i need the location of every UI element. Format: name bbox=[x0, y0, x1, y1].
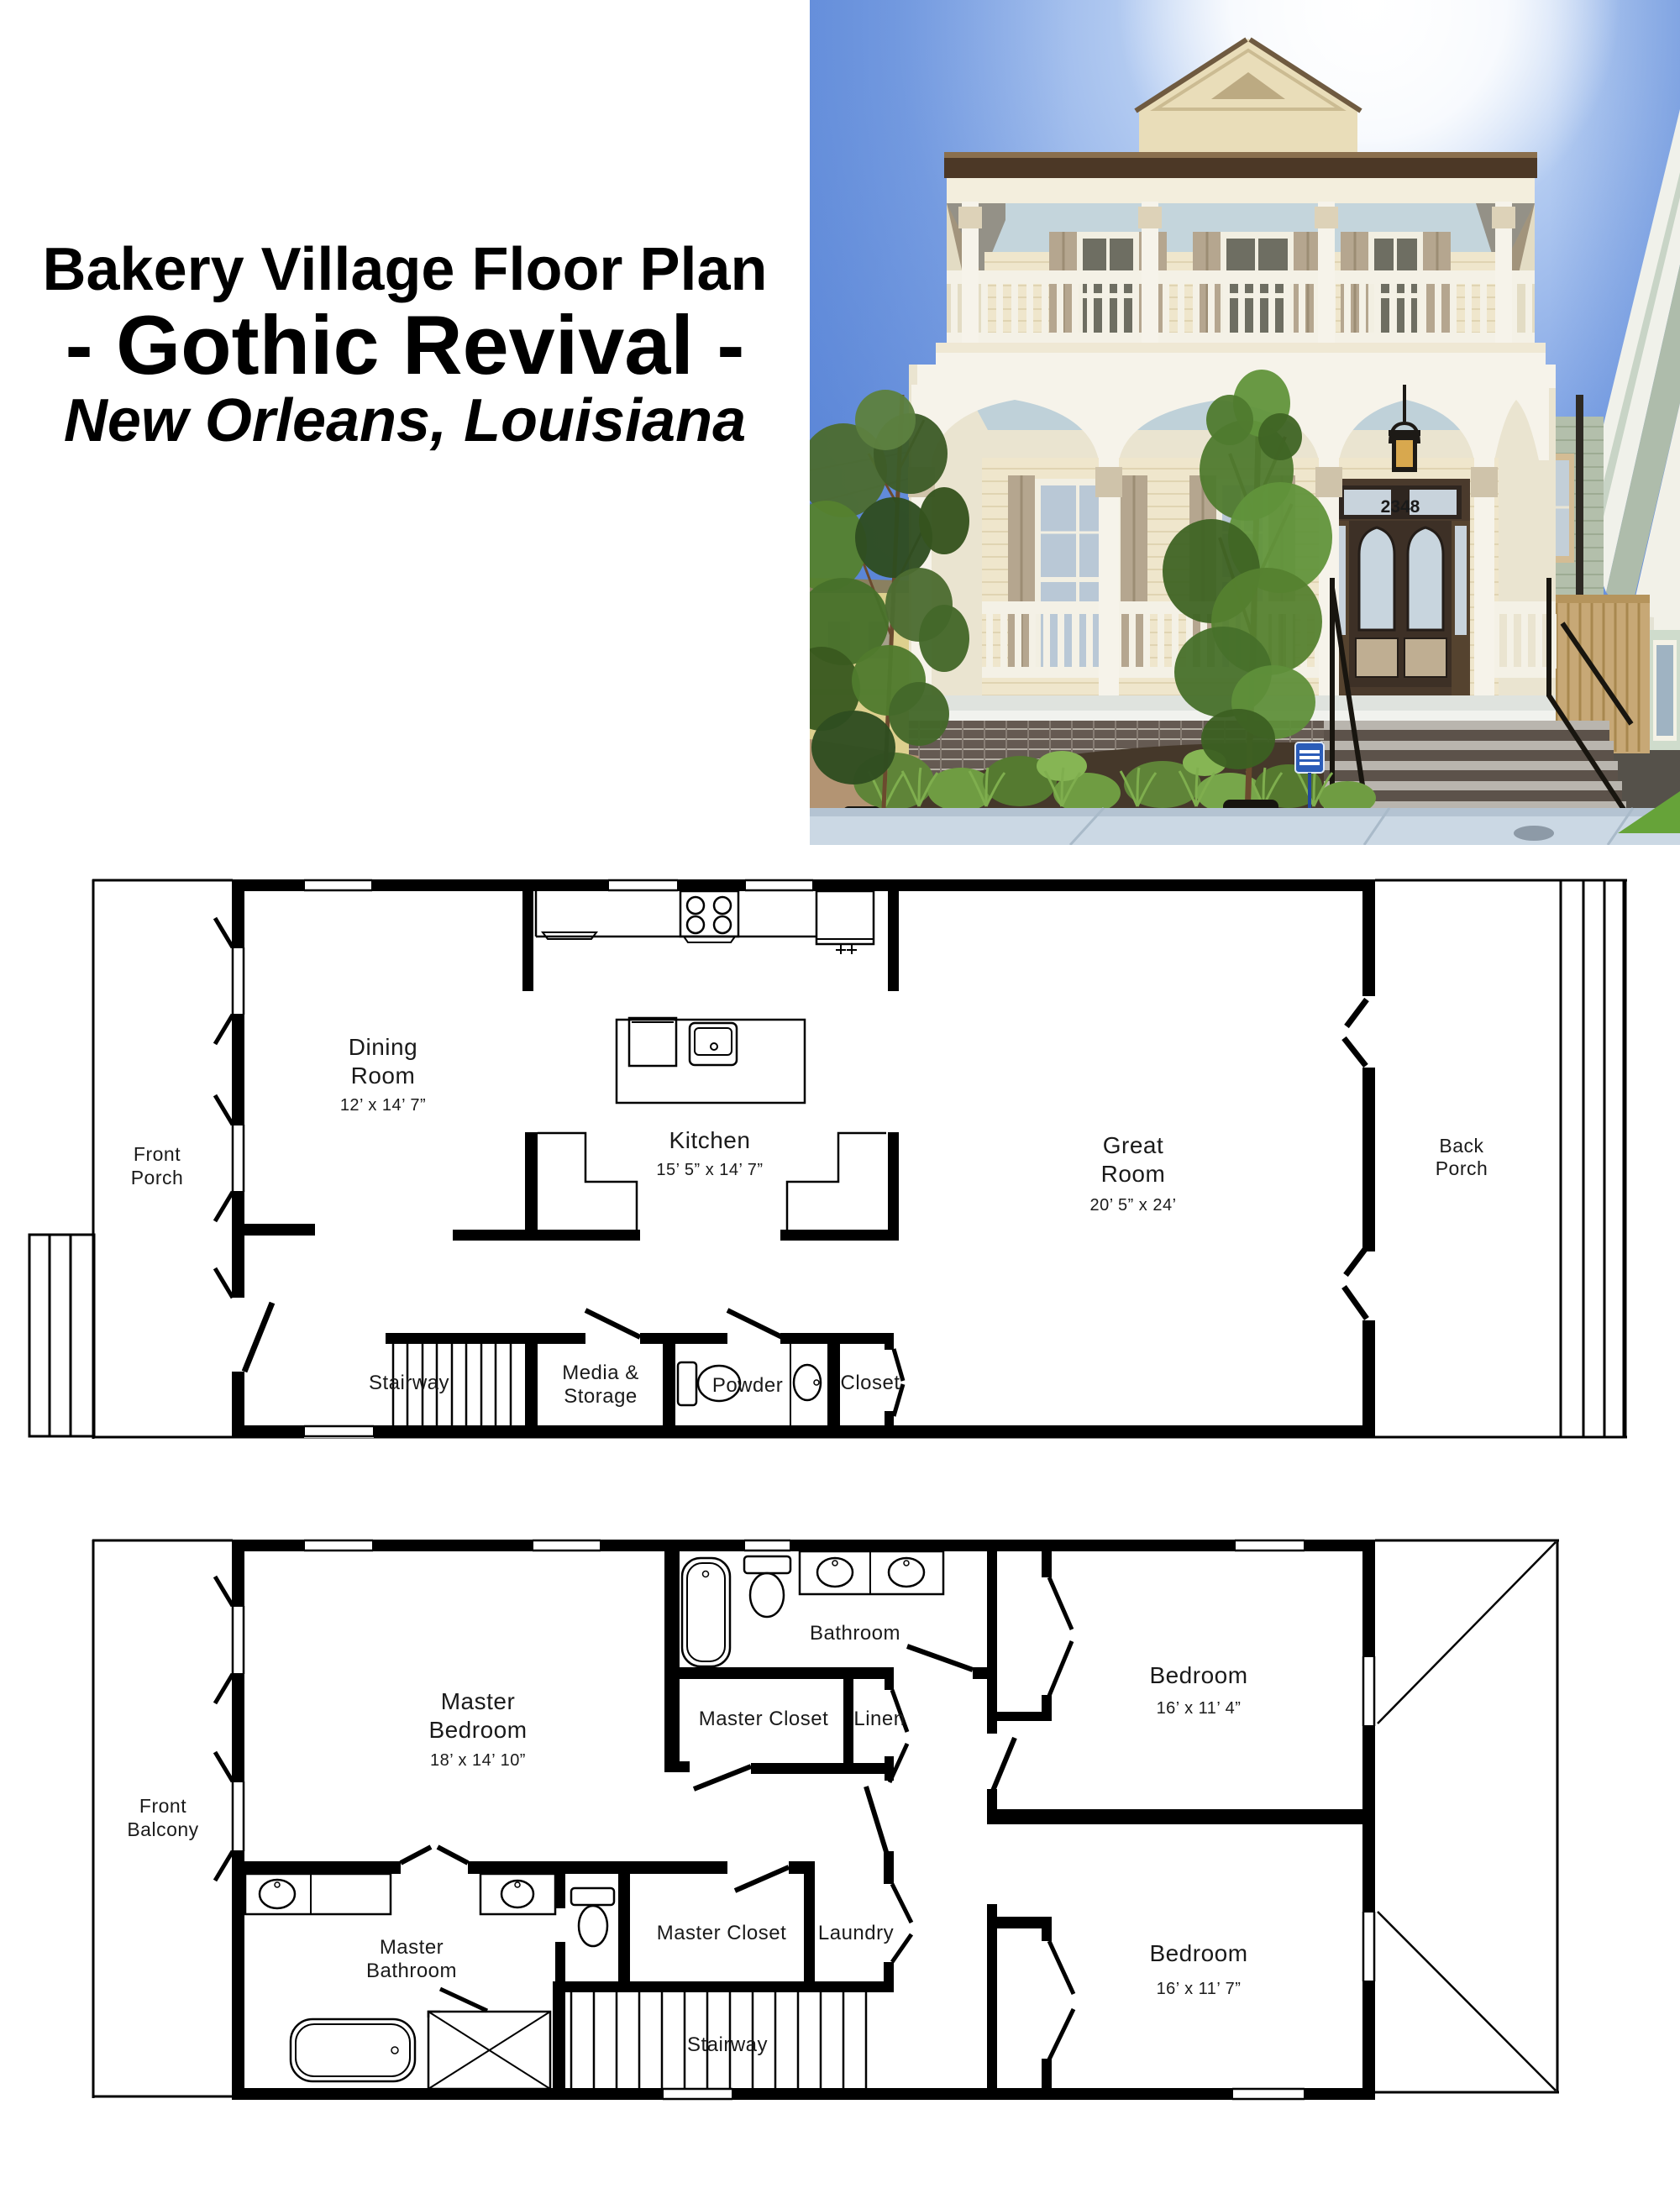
svg-text:Closet: Closet bbox=[840, 1372, 900, 1394]
svg-text:2348: 2348 bbox=[1381, 497, 1420, 517]
svg-text:Bedroom: Bedroom bbox=[1149, 1662, 1247, 1688]
svg-text:Media &: Media & bbox=[562, 1362, 639, 1384]
svg-text:Bathroom: Bathroom bbox=[810, 1622, 900, 1645]
svg-text:Master Closet: Master Closet bbox=[657, 1922, 787, 1944]
svg-text:Porch: Porch bbox=[131, 1167, 184, 1188]
svg-text:Bedroom: Bedroom bbox=[428, 1717, 527, 1743]
svg-text:16’ x 11’ 4”: 16’ x 11’ 4” bbox=[1157, 1699, 1242, 1718]
svg-text:Powder: Powder bbox=[712, 1374, 783, 1397]
svg-text:Bedroom: Bedroom bbox=[1149, 1940, 1247, 1966]
svg-text:Room: Room bbox=[1101, 1161, 1166, 1187]
svg-text:16’ x 11’ 7”: 16’ x 11’ 7” bbox=[1157, 1980, 1242, 1998]
svg-text:Master: Master bbox=[380, 1936, 444, 1959]
svg-text:Porch: Porch bbox=[1436, 1157, 1488, 1179]
svg-text:Stairway: Stairway bbox=[369, 1372, 449, 1394]
svg-text:Master Closet: Master Closet bbox=[699, 1708, 829, 1730]
svg-text:Front: Front bbox=[139, 1795, 186, 1817]
svg-text:Linen: Linen bbox=[853, 1708, 905, 1730]
svg-text:Stairway: Stairway bbox=[687, 2033, 768, 2056]
svg-text:20’ 5” x 24’: 20’ 5” x 24’ bbox=[1089, 1196, 1176, 1215]
svg-text:15’ 5” x 14’ 7”: 15’ 5” x 14’ 7” bbox=[656, 1161, 763, 1179]
svg-text:Great: Great bbox=[1103, 1132, 1164, 1158]
svg-text:Master: Master bbox=[441, 1688, 516, 1714]
svg-text:18’ x 14’ 10”: 18’ x 14’ 10” bbox=[430, 1751, 526, 1770]
svg-text:Kitchen: Kitchen bbox=[669, 1127, 751, 1153]
svg-text:12’ x 14’ 7”: 12’ x 14’ 7” bbox=[340, 1096, 426, 1115]
svg-text:Storage: Storage bbox=[564, 1385, 638, 1408]
svg-text:Front: Front bbox=[134, 1143, 181, 1165]
svg-text:Back: Back bbox=[1439, 1135, 1483, 1157]
svg-text:Laundry: Laundry bbox=[818, 1922, 894, 1944]
svg-text:Balcony: Balcony bbox=[127, 1818, 198, 1840]
svg-text:Bathroom: Bathroom bbox=[366, 1960, 457, 1982]
svg-text:Room: Room bbox=[351, 1063, 416, 1089]
svg-text:Dining: Dining bbox=[349, 1034, 417, 1060]
